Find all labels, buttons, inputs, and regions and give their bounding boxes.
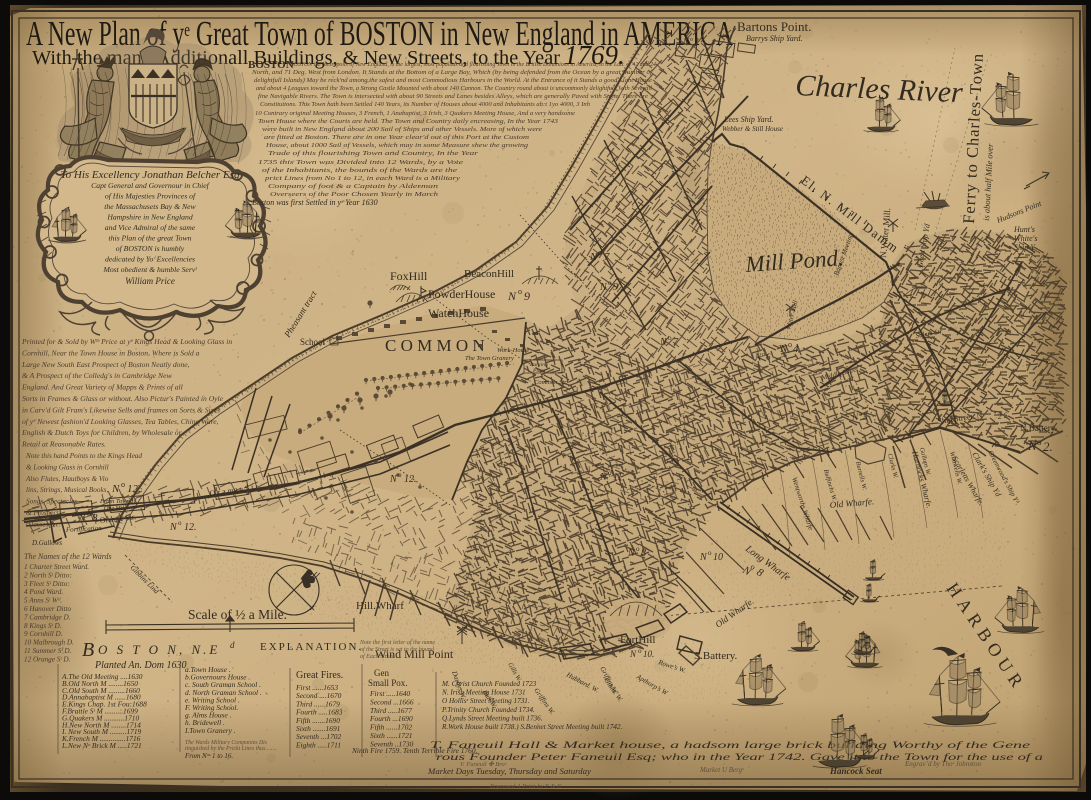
svg-text:Small Pox.: Small Pox.: [368, 678, 408, 688]
svg-text:FortHill: FortHill: [620, 634, 655, 646]
svg-text:o: o: [690, 37, 693, 43]
svg-text:Engraved A Print by F & E: Engraved A Print by F & E: [489, 783, 561, 790]
svg-text:2 North Sᵗ Ditto:: 2 North Sᵗ Ditto:: [24, 571, 72, 579]
svg-text:of yᵉ Newest fashion'd Looking: of yᵉ Newest fashion'd Looking Glasses, …: [22, 417, 219, 426]
svg-text:EXPLANATION.: EXPLANATION.: [260, 641, 363, 653]
svg-text:5 Anns Sᵗ Wᵈ.: 5 Anns Sᵗ Wᵈ.: [24, 597, 62, 605]
svg-text:Also Flutes, Hautboys & Vio: Also Flutes, Hautboys & Vio: [25, 475, 109, 483]
svg-text:o: o: [636, 545, 640, 553]
svg-text:the Massachusets Bay & New: the Massachusets Bay & New: [104, 202, 196, 211]
svg-text:10 Contrary original Meeting H: 10 Contrary original Meeting Houses, 3 F…: [255, 111, 575, 117]
svg-text:N: N: [851, 412, 859, 422]
svg-text:English & Dutch Toys for Child: English & Dutch Toys for Children, by Wh…: [21, 428, 182, 437]
svg-text:12.: 12.: [184, 522, 197, 533]
svg-text:o: o: [762, 352, 765, 358]
svg-text:N: N: [77, 512, 86, 524]
svg-text:9: 9: [613, 282, 618, 293]
svg-text:and Vice Admiral of the same: and Vice Admiral of the same: [105, 223, 196, 232]
svg-text:& Prospect: & Prospect: [26, 509, 60, 517]
svg-text:V. Faneuil ✤ Broᵉ: V. Faneuil ✤ Broᵉ: [460, 761, 507, 768]
svg-text:C O M M O N: C O M M O N: [385, 336, 485, 355]
svg-text:o: o: [608, 469, 612, 477]
svg-text:d: d: [230, 640, 235, 650]
svg-text:Capt General and Governour in: Capt General and Governour in Chief: [91, 181, 211, 190]
svg-text:Market Days Tuesday, Thursday: Market Days Tuesday, Thursday and Saturd…: [427, 766, 591, 776]
svg-text:o: o: [859, 412, 862, 418]
svg-text:Lees Ship Yard.: Lees Ship Yard.: [723, 115, 773, 124]
svg-text:11 Summer Sᵗ D.: 11 Summer Sᵗ D.: [24, 647, 72, 655]
svg-text:prict Lines from No 1 to 12, i: prict Lines from No 1 to 12, in each War…: [264, 175, 461, 182]
svg-text:o: o: [121, 480, 125, 489]
svg-text:Barrys Ship Yard.: Barrys Ship Yard.: [746, 34, 803, 43]
svg-text:o: o: [1037, 437, 1042, 447]
svg-text:North, and 71 Deg. West from L: North, and 71 Deg. West from London. It …: [251, 69, 654, 76]
svg-text:Cornhill, Near the Town House: Cornhill, Near the Town House in Boston,…: [22, 348, 200, 357]
svg-text:11: 11: [613, 472, 622, 483]
svg-text:B: B: [82, 639, 94, 661]
svg-text:o: o: [598, 248, 602, 257]
svg-text:N: N: [699, 552, 708, 563]
svg-text:9 Cornhill D.: 9 Cornhill D.: [24, 630, 63, 638]
svg-text:6 Hanover Ditto: 6 Hanover Ditto: [24, 605, 72, 613]
svg-text:are fitted at Boston. There ar: are fitted at Boston. There are in one Y…: [264, 134, 530, 141]
svg-text:o: o: [668, 334, 672, 342]
svg-text:From Town H.: From Town H.: [99, 498, 138, 505]
svg-text:N: N: [599, 472, 608, 483]
svg-text:o: o: [87, 509, 91, 518]
svg-text:N: N: [169, 522, 178, 533]
svg-text:N: N: [629, 649, 637, 659]
svg-text:N: N: [682, 37, 690, 47]
svg-text:o: o: [518, 287, 522, 296]
svg-text:o: o: [608, 279, 612, 287]
svg-text:1 Charter Street Ward.: 1 Charter Street Ward.: [24, 563, 89, 571]
svg-text:N: N: [589, 251, 598, 263]
svg-text:were built in New England abou: were built in New England about 200 Sail…: [262, 126, 542, 133]
svg-text:Overseers of the Poor Chosen Y: Overseers of the Poor Chosen Yearly in M…: [270, 191, 438, 198]
svg-text:N: N: [659, 337, 668, 348]
svg-text:o: o: [708, 549, 712, 557]
svg-text:& Looking Glass in Cornhill: & Looking Glass in Cornhill: [26, 463, 109, 471]
svg-text:12.: 12.: [127, 483, 141, 495]
svg-text:White's: White's: [1014, 234, 1037, 243]
svg-text:12 Orange Sᵗ D.: 12 Orange Sᵗ D.: [24, 655, 71, 663]
svg-text:4 Pond Ward.: 4 Pond Ward.: [24, 588, 63, 596]
svg-text:N: N: [779, 343, 788, 355]
svg-text:N.Battery.: N.Battery.: [1020, 423, 1057, 433]
svg-text:Gen: Gen: [374, 668, 389, 678]
svg-text:House, about 1000 Sail of Vess: House, about 1000 Sail of Vessels, which…: [265, 142, 528, 149]
svg-text:o: o: [178, 519, 182, 527]
svg-text:Note the first letter of the n: Note the first letter of the name: [359, 639, 435, 646]
svg-text:6: 6: [766, 352, 771, 362]
svg-text:2 S: 2 S: [997, 411, 1008, 421]
svg-text:O S T O N, N.E: O S T O N, N.E: [98, 642, 220, 657]
svg-text:England. And Great Variety of: England. And Great Variety of Mapps & Pr…: [21, 383, 183, 392]
svg-text:School: School: [300, 337, 326, 347]
svg-text:Great Fires.: Great Fires.: [296, 670, 343, 681]
svg-text:8 Kings Sᵗ D.: 8 Kings Sᵗ D.: [24, 622, 62, 630]
svg-text:Boston was first Settled in yᵉ: Boston was first Settled in yᵉ Year 1630: [252, 198, 378, 207]
svg-text:P.Trinity Church Founded 1734.: P.Trinity Church Founded 1734.: [441, 706, 535, 714]
svg-text:Constitutions. This Town hath: Constitutions. This Town hath been Settl…: [260, 101, 590, 108]
svg-text:Market U Bergˢ: Market U Bergˢ: [699, 766, 744, 774]
svg-text:& A Prospect of the Colledg's: & A Prospect of the Colledg's in Cambrid…: [22, 371, 172, 380]
svg-text:Retail at Reasonable Rates.: Retail at Reasonable Rates.: [21, 440, 106, 449]
svg-text:Eighth .....1711: Eighth .....1711: [295, 740, 341, 749]
svg-text:10: 10: [713, 552, 723, 563]
svg-text:of the Street is set to the bo: of the Street is set to the bound: [360, 646, 435, 653]
svg-text:10 Malbrough D.: 10 Malbrough D.: [24, 639, 74, 647]
svg-text:T. Faneuil Hall & Market house: T. Faneuil Hall & Market house, a hadsom…: [430, 740, 1030, 750]
svg-text:12.: 12.: [404, 474, 417, 485]
svg-text:The Names of the 12 Wards: The Names of the 12 Wards: [24, 552, 112, 561]
svg-text:of the Inhabitants, the bounds: of the Inhabitants, the bounds of the Wa…: [262, 167, 457, 174]
svg-text:9: 9: [524, 289, 530, 303]
svg-text:of BOSTON is humbly: of BOSTON is humbly: [116, 244, 185, 253]
svg-text:delightfull Islands) May be re: delightfull Islands) May be reck'nd amon…: [254, 77, 652, 84]
svg-text:of His Majesties Provinces of: of His Majesties Provinces of: [105, 192, 197, 201]
svg-text:4: 4: [793, 343, 799, 355]
svg-text:Songs, Spectacles: Songs, Spectacles: [26, 498, 77, 506]
svg-text:o: o: [788, 340, 792, 349]
svg-text:S.Battery.: S.Battery.: [694, 650, 738, 662]
svg-text:Company of foot & a Captain by: Company of foot & a Captain by Alderman: [268, 183, 438, 190]
svg-text:2.: 2.: [1043, 439, 1053, 454]
svg-text:L.New Nᵒ Brick M .....1721: L.New Nᵒ Brick M .....1721: [61, 741, 142, 750]
svg-text:FoxHill: FoxHill: [390, 269, 428, 283]
svg-text:in Carv'd Gilt Fram's Likewise: in Carv'd Gilt Fram's Likewise Sells and…: [22, 405, 220, 414]
svg-text:fine Navigable Rivers. The Tow: fine Navigable Rivers. The Town is inter…: [258, 93, 648, 100]
svg-text:Bartons Point.: Bartons Point.: [737, 19, 811, 34]
svg-text:o: o: [638, 647, 642, 655]
svg-text:Large New South East Prospect: Large New South East Prospect of Boston …: [21, 360, 190, 369]
svg-text:3 Fleet Sᵗ Ditto:: 3 Fleet Sᵗ Ditto:: [23, 580, 70, 588]
svg-text:Scale of ½ a Mile.: Scale of ½ a Mile.: [188, 607, 287, 622]
svg-text:Hill.Wharf: Hill.Wharf: [356, 600, 404, 612]
svg-text:William Price: William Price: [125, 276, 175, 286]
svg-text:10.: 10.: [643, 649, 654, 659]
svg-text:this Plan of the great Town: this Plan of the great Town: [109, 234, 192, 243]
svg-text:Webber & Still House: Webber & Still House: [722, 125, 783, 133]
svg-text:Sorts in Frames & Glass or wit: Sorts in Frames & Glass or without. Also…: [22, 394, 224, 403]
svg-text:To His Excellency Jonathan Bel: To His Excellency Jonathan Belcher Esq: [61, 169, 240, 181]
svg-text:N: N: [627, 548, 636, 559]
svg-text:Hunt's: Hunt's: [1013, 225, 1035, 234]
svg-text:Q.Lynds Street Meeting built 1: Q.Lynds Street Meeting built 1736.: [442, 714, 543, 722]
svg-text:N: N: [111, 483, 120, 495]
svg-text:of Each Street.: of Each Street.: [360, 653, 395, 660]
svg-text:N: N: [507, 289, 517, 303]
svg-text:I.Town Granery .: I.Town Granery .: [184, 726, 236, 735]
svg-text:R.Work House built 1738.) S.Be: R.Work House built 1738.) S.Bennet Stree…: [441, 723, 623, 731]
svg-text:7 Cambridge D.: 7 Cambridge D.: [24, 613, 71, 621]
svg-text:One Mile: One Mile: [104, 506, 127, 512]
svg-text:Town House where the Courts ar: Town House where the Courts are held. Th…: [258, 119, 558, 125]
svg-text:Place: Place: [532, 368, 546, 374]
svg-text:BOSTON the Metropolis of New E: BOSTON the Metropolis of New England, is…: [290, 61, 656, 68]
svg-text:BeaconHill: BeaconHill: [464, 268, 514, 280]
svg-text:Printed for & Sold by Wᵐ Price: Printed for & Sold by Wᵐ Price at yᵉ Kin…: [21, 337, 232, 346]
svg-text:1735 this Town was Divided int: 1735 this Town was Divided into 12 Wards…: [258, 160, 463, 166]
svg-text:and about 4 Leagues toward the: and about 4 Leagues toward the Town, a S…: [256, 85, 652, 92]
svg-text:WatchHouse: WatchHouse: [428, 306, 489, 320]
svg-text:8.: 8.: [92, 512, 100, 524]
svg-text:N: N: [599, 282, 608, 293]
svg-text:Planted An. Dom 1630: Planted An. Dom 1630: [94, 660, 186, 671]
svg-text:From Nᵒˢ 1 to 16.: From Nᵒˢ 1 to 16.: [184, 752, 233, 760]
svg-text:Most obedient & humble Servᵗ: Most obedient & humble Servᵗ: [102, 265, 197, 274]
svg-text:8: 8: [641, 548, 646, 559]
svg-text:7: 7: [604, 251, 610, 263]
svg-text:Ship Y: Ship Y: [1014, 243, 1036, 252]
svg-text:D.Gallows: D.Gallows: [31, 539, 62, 547]
svg-text:N: N: [754, 352, 762, 362]
svg-text:Hampshire in New England: Hampshire in New England: [106, 213, 192, 222]
svg-text:Trade of this flourishing Town: Trade of this flourishing Town and Count…: [268, 150, 479, 157]
svg-text:Work-House: Work-House: [497, 347, 529, 354]
svg-text:Ninth Fire 1759. Tenth Terribl: Ninth Fire 1759. Tenth Terrible Fire 176…: [351, 746, 478, 755]
svg-text:lins, Strings, Musical Books,: lins, Strings, Musical Books,: [26, 486, 108, 494]
svg-text:The Town Granery: The Town Granery: [465, 355, 514, 362]
svg-text:Glasses &c.: Glasses &c.: [26, 520, 61, 528]
svg-text:Common Str.: Common Str.: [534, 379, 568, 386]
svg-text:Engrav’d by Thoˢ Johnston: Engrav’d by Thoˢ Johnston: [904, 760, 981, 768]
svg-text:7: 7: [694, 37, 699, 47]
svg-text:Note this hand Points to the K: Note this hand Points to the Kings Head: [25, 452, 142, 460]
svg-text:dedicated by Yoⁱ Excellencies: dedicated by Yoⁱ Excellencies: [105, 255, 195, 264]
svg-text:5: 5: [863, 412, 868, 422]
svg-text:PowderHouse: PowderHouse: [428, 287, 495, 301]
